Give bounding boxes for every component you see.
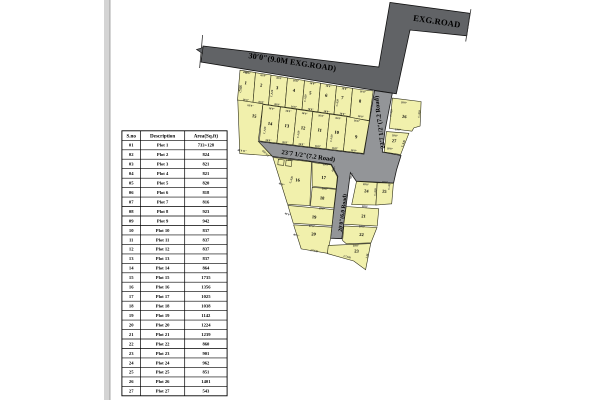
- svg-text:820: 820: [202, 181, 210, 186]
- svg-text:962: 962: [202, 360, 210, 365]
- svg-text:1142: 1142: [201, 313, 211, 318]
- svg-text:Plot 23: Plot 23: [156, 351, 170, 356]
- svg-text:02: 02: [129, 152, 134, 157]
- svg-text:837: 837: [202, 256, 210, 261]
- svg-text:30'8": 30'8": [362, 205, 369, 209]
- svg-text:37'0": 37'0": [309, 225, 316, 228]
- svg-text:Plot 22: Plot 22: [156, 341, 170, 346]
- svg-text:837: 837: [202, 247, 210, 252]
- svg-text:21: 21: [129, 332, 134, 337]
- svg-text:05: 05: [129, 181, 134, 186]
- svg-text:Plot 20: Plot 20: [156, 322, 170, 327]
- svg-text:1038: 1038: [201, 304, 211, 309]
- svg-text:Plot 25: Plot 25: [156, 370, 170, 375]
- svg-text:10: 10: [129, 228, 134, 233]
- svg-text:Area(Sq.ft): Area(Sq.ft): [194, 133, 219, 140]
- svg-text:923: 923: [202, 209, 210, 214]
- svg-text:15: 15: [129, 275, 134, 280]
- svg-text:Plot 19: Plot 19: [156, 313, 170, 318]
- svg-text:821: 821: [202, 171, 210, 176]
- svg-text:Plot 18: Plot 18: [156, 304, 170, 309]
- svg-text:(.7.64): (.7.64): [310, 249, 318, 253]
- svg-text:824: 824: [202, 152, 210, 157]
- svg-text:20: 20: [129, 322, 134, 327]
- svg-text:Plot 13: Plot 13: [156, 256, 170, 261]
- svg-text:19: 19: [129, 313, 134, 318]
- svg-text:Plot 17: Plot 17: [156, 294, 170, 299]
- svg-text:Plot 21: Plot 21: [156, 332, 170, 337]
- svg-text:30'8": 30'8": [353, 244, 360, 247]
- svg-text:Plot 5: Plot 5: [157, 181, 169, 186]
- svg-text:03: 03: [129, 162, 134, 167]
- svg-text:1239: 1239: [201, 332, 211, 337]
- svg-text:18: 18: [129, 304, 134, 309]
- svg-text:09: 09: [129, 218, 134, 223]
- svg-text:837: 837: [202, 228, 210, 233]
- svg-text:1224: 1224: [201, 322, 211, 327]
- svg-text:818: 818: [202, 190, 210, 195]
- svg-text:Plot 3: Plot 3: [157, 162, 169, 167]
- svg-text:01: 01: [129, 143, 134, 148]
- svg-text:22: 22: [129, 341, 134, 346]
- svg-text:Plot 2: Plot 2: [157, 152, 169, 157]
- svg-text:Plot 16: Plot 16: [156, 285, 170, 290]
- svg-text:11: 11: [129, 237, 134, 242]
- svg-text:12: 12: [129, 247, 134, 252]
- svg-text:Plot 4: Plot 4: [157, 171, 169, 176]
- svg-text:Plot 15: Plot 15: [156, 275, 170, 280]
- svg-text:08: 08: [129, 209, 134, 214]
- svg-text:837: 837: [202, 237, 210, 242]
- svg-text:Plot 6: Plot 6: [157, 190, 169, 195]
- svg-text:733+128: 733+128: [198, 143, 215, 148]
- svg-text:1025: 1025: [201, 294, 211, 299]
- svg-text:24: 24: [129, 360, 134, 365]
- svg-text:14: 14: [129, 266, 134, 271]
- svg-text:Plot 12: Plot 12: [156, 247, 170, 252]
- svg-text:16: 16: [129, 285, 134, 290]
- svg-text:901: 901: [202, 351, 210, 356]
- svg-text:543: 543: [202, 389, 210, 394]
- svg-text:07: 07: [129, 199, 134, 204]
- svg-text:Plot 14: Plot 14: [156, 266, 170, 271]
- svg-text:860: 860: [202, 341, 210, 346]
- svg-text:1356: 1356: [201, 285, 211, 290]
- svg-text:Plot 10: Plot 10: [156, 228, 170, 233]
- svg-text:25: 25: [129, 370, 134, 375]
- svg-text:Plot 1: Plot 1: [157, 143, 169, 148]
- svg-text:23'0": 23'0": [395, 128, 402, 132]
- svg-text:20'0": 20'0": [363, 183, 370, 187]
- svg-text:04: 04: [129, 171, 134, 176]
- svg-text:21: 21: [361, 213, 366, 218]
- svg-text:C.A20: C.A20: [418, 110, 422, 118]
- svg-text:Plot 7: Plot 7: [157, 199, 169, 204]
- svg-text:27: 27: [129, 389, 134, 394]
- svg-text:1735: 1735: [201, 275, 211, 280]
- svg-text:Plot 11: Plot 11: [156, 237, 170, 242]
- svg-text:1.46': 1.46': [365, 253, 369, 259]
- svg-text:942: 942: [202, 218, 210, 223]
- svg-text:816: 816: [202, 199, 210, 204]
- svg-text:821: 821: [202, 162, 210, 167]
- svg-text:Plot 26: Plot 26: [156, 379, 170, 384]
- svg-text:Plot 24: Plot 24: [156, 360, 170, 365]
- svg-text:1401: 1401: [201, 379, 211, 384]
- svg-text:Plot 27: Plot 27: [156, 389, 170, 394]
- svg-text:26: 26: [129, 379, 134, 384]
- svg-text:851: 851: [202, 370, 210, 375]
- svg-text:13: 13: [129, 256, 134, 261]
- svg-text:Plot 9: Plot 9: [157, 218, 169, 223]
- svg-text:23: 23: [129, 351, 134, 356]
- svg-text:22: 22: [359, 232, 364, 237]
- svg-text:864: 864: [202, 266, 210, 271]
- svg-text:06: 06: [129, 190, 134, 195]
- svg-text:30'8": 30'8": [359, 225, 366, 228]
- svg-text:Plot 8: Plot 8: [157, 209, 169, 214]
- svg-text:40'0": 40'0": [284, 212, 291, 217]
- svg-text:S.no: S.no: [126, 134, 136, 140]
- svg-text:17: 17: [129, 294, 134, 299]
- svg-text:Description: Description: [150, 134, 175, 140]
